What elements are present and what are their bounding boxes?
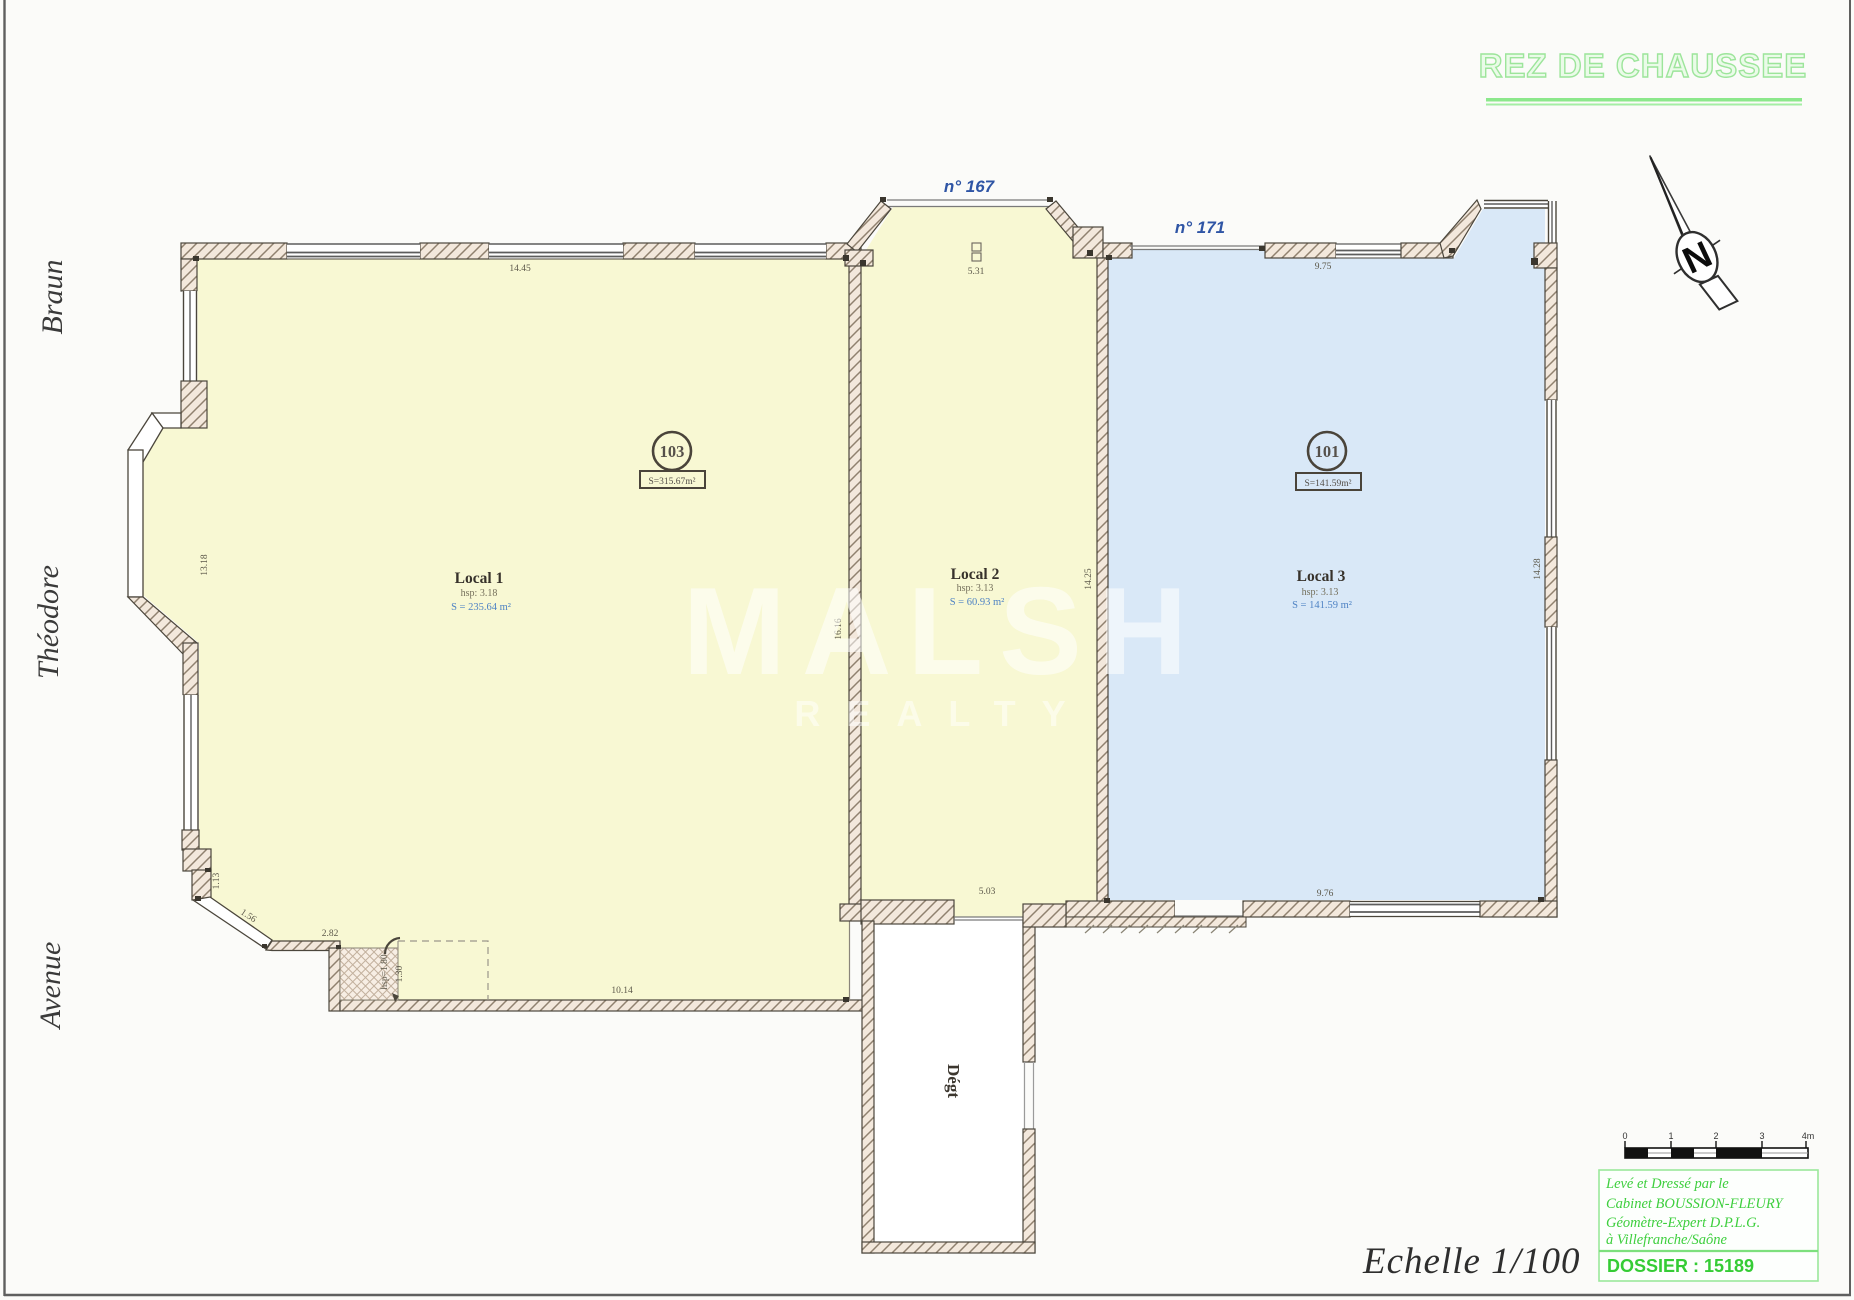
svg-text:Dégt: Dégt xyxy=(944,1064,963,1098)
svg-text:S = 235.64 m²: S = 235.64 m² xyxy=(451,602,511,613)
svg-text:9.75: 9.75 xyxy=(1315,262,1332,272)
svg-text:101: 101 xyxy=(1315,442,1340,461)
svg-text:Levé et Dressé par le: Levé et Dressé par le xyxy=(1605,1176,1729,1192)
svg-text:2.82: 2.82 xyxy=(322,929,339,939)
svg-text:REZ DE CHAUSSEE: REZ DE CHAUSSEE xyxy=(1479,47,1808,84)
svg-text:3: 3 xyxy=(1759,1131,1764,1141)
svg-text:0: 0 xyxy=(1622,1131,1627,1141)
svg-text:REALTY: REALTY xyxy=(794,693,1091,734)
svg-text:S=315.67m²: S=315.67m² xyxy=(648,477,695,487)
svg-text:n° 171: n° 171 xyxy=(1175,218,1225,237)
svg-text:14.45: 14.45 xyxy=(509,264,531,274)
svg-text:hsp=1.80: hsp=1.80 xyxy=(380,954,390,989)
svg-text:Théodore: Théodore xyxy=(32,565,65,679)
svg-text:5.31: 5.31 xyxy=(968,267,985,277)
svg-text:à Villefranche/Saône: à Villefranche/Saône xyxy=(1606,1232,1727,1248)
svg-text:13.18: 13.18 xyxy=(200,554,210,576)
svg-text:hsp: 3.18: hsp: 3.18 xyxy=(461,588,498,599)
svg-text:Cabinet BOUSSION-FLEURY: Cabinet BOUSSION-FLEURY xyxy=(1606,1196,1784,1212)
svg-text:1: 1 xyxy=(1668,1131,1673,1141)
svg-text:n° 167: n° 167 xyxy=(944,177,996,196)
svg-text:S = 141.59 m²: S = 141.59 m² xyxy=(1292,600,1352,611)
svg-text:Géomètre-Expert D.P.L.G.: Géomètre-Expert D.P.L.G. xyxy=(1606,1215,1760,1231)
svg-text:9.76: 9.76 xyxy=(1317,889,1334,899)
svg-text:hsp: 3.13: hsp: 3.13 xyxy=(1302,587,1339,598)
svg-text:103: 103 xyxy=(660,442,685,461)
svg-text:Echelle 1/100: Echelle 1/100 xyxy=(1362,1241,1580,1282)
svg-text:1.30: 1.30 xyxy=(395,965,405,982)
svg-text:Avenue: Avenue xyxy=(34,942,67,1031)
svg-text:1.13: 1.13 xyxy=(212,872,222,889)
svg-text:4m: 4m xyxy=(1802,1131,1815,1141)
svg-text:DOSSIER : 15189: DOSSIER : 15189 xyxy=(1607,1256,1754,1276)
svg-text:S=141.59m²: S=141.59m² xyxy=(1304,479,1351,489)
svg-text:14.28: 14.28 xyxy=(1533,558,1543,580)
svg-text:Local 1: Local 1 xyxy=(455,570,504,587)
svg-text:5.03: 5.03 xyxy=(979,887,996,897)
svg-text:MALSH: MALSH xyxy=(683,563,1204,701)
svg-text:2: 2 xyxy=(1713,1131,1718,1141)
svg-text:Local 3: Local 3 xyxy=(1297,568,1346,585)
svg-text:10.14: 10.14 xyxy=(611,986,633,996)
svg-text:Braun: Braun xyxy=(36,260,69,335)
